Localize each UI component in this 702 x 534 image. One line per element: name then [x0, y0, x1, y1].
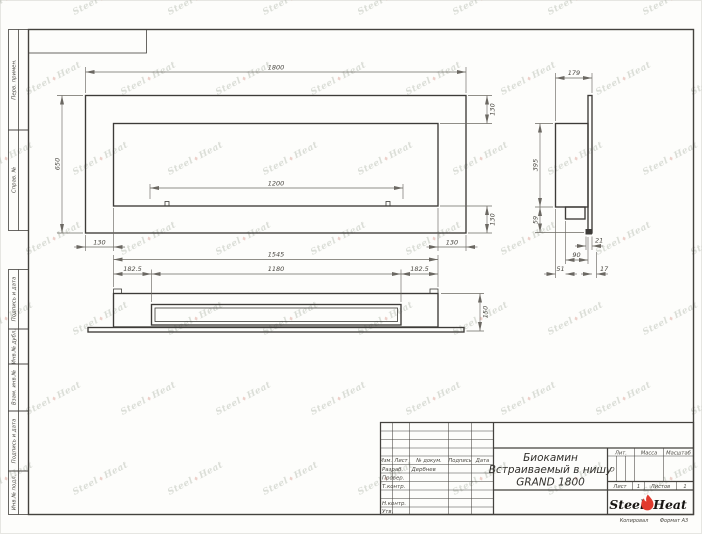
dim-front-bottom-right-offset: 130: [446, 239, 458, 247]
dim-front-top-right: 130: [489, 103, 497, 115]
col-list: Лист: [393, 458, 408, 464]
margin-label-inv-dubl: Инв.№ дубл.: [12, 329, 18, 364]
dim-front-bottom-left-offset: 130: [93, 239, 105, 247]
margin-label-inv-podl: Инв.№ подл.: [12, 475, 18, 510]
dim-side-box: 90: [572, 251, 580, 259]
sheet-label: Лист: [612, 484, 627, 490]
row-utv-label: Утв.: [382, 509, 393, 515]
margin-label-podpis-data-1: Подпись и дата: [12, 277, 18, 322]
dim-front-burner: 1200: [268, 180, 285, 188]
lit-label: Лит.: [614, 450, 627, 456]
margin-label-podpis-data-2: Подпись и дата: [12, 419, 18, 464]
side-view: [556, 96, 593, 235]
sheets-label: Листов: [650, 484, 670, 490]
mass-label: Масса: [641, 450, 658, 456]
row-nkontr-label: Н.контр.: [382, 501, 406, 507]
front-plate-profile: [588, 96, 592, 234]
lit-value: О: [609, 466, 614, 474]
margin-label-sprav-no: Справ. №: [12, 166, 18, 193]
dim-side-bottom: 59: [532, 216, 540, 224]
col-izm: Изм.: [380, 458, 392, 464]
side-view-dimensions: 179 395 59 21 90 51: [532, 69, 610, 278]
plan-view: [88, 289, 464, 332]
logo-steel: Steel: [609, 497, 645, 512]
title-block: Изм. Лист № докум. Подпись Дата Разраб. …: [380, 423, 694, 525]
front-plate-edge: [88, 328, 464, 333]
row-prover-label: Провер.: [382, 475, 404, 481]
row-tkontr-label: Т.контр.: [382, 484, 405, 490]
dim-side-height: 395: [532, 159, 540, 171]
dim-side-depth: 179: [568, 69, 580, 77]
sheets-value: 1: [683, 484, 686, 490]
doc-title-line3: GRAND 1800: [516, 477, 585, 489]
col-sign: Подпись: [448, 458, 471, 464]
sheet-value: 1: [637, 484, 640, 490]
front-view: [86, 96, 467, 234]
footer-format: Формат А3: [660, 518, 688, 524]
top-reference-box: [29, 30, 147, 54]
doc-title-line2: Встраиваемый в нишу: [489, 464, 613, 476]
drawing-canvas: Перв. примен. Справ. № Подпись и дата Ин…: [0, 0, 702, 534]
row-razrab-name: Дербнев: [411, 467, 436, 473]
dim-plan-right: 182.5: [410, 265, 429, 273]
dim-side-inset: 51: [556, 265, 564, 273]
margin-column: Перв. примен. Справ. № Подпись и дата Ин…: [9, 30, 29, 515]
bottom-box: [566, 207, 586, 219]
row-razrab-label: Разраб.: [382, 467, 403, 473]
burner-stop-right: [386, 202, 390, 207]
col-doc: № докум.: [415, 458, 442, 464]
plan-view-dimensions: 1545 182.5 1180 182.5 150: [114, 251, 490, 332]
plate-foot: [586, 229, 593, 235]
doc-title-line1: Биокамин: [523, 452, 578, 464]
burner-stop-left: [165, 202, 169, 207]
dim-side-lip: 21: [595, 237, 603, 245]
margin-label-perv-primen: Перв. примен.: [12, 59, 18, 99]
footer-copy: Копировал: [620, 518, 649, 524]
dim-front-height: 650: [54, 158, 62, 170]
margin-label-vzam-inv: Взам. инв.№: [12, 370, 18, 405]
front-view-dimensions: 1800 650 1200 130 130: [54, 64, 497, 252]
scale-label: Масштаб: [666, 450, 691, 456]
dim-plan-width: 1545: [268, 251, 285, 259]
col-date: Дата: [475, 458, 489, 464]
dim-side-gap: 17: [600, 265, 609, 273]
logo-heat: Heat: [652, 497, 687, 512]
dim-plan-depth: 150: [482, 306, 490, 318]
steelheat-logo: Steel Heat: [609, 494, 687, 512]
dim-front-bottom-right: 130: [489, 213, 497, 225]
dim-front-width: 1800: [268, 64, 285, 72]
dim-plan-slot: 1180: [268, 265, 285, 273]
dim-plan-left: 182.5: [123, 265, 142, 273]
drawing-sheet: Steel♦HeatSteel♦HeatSteel♦HeatSteel♦Heat…: [0, 0, 702, 534]
